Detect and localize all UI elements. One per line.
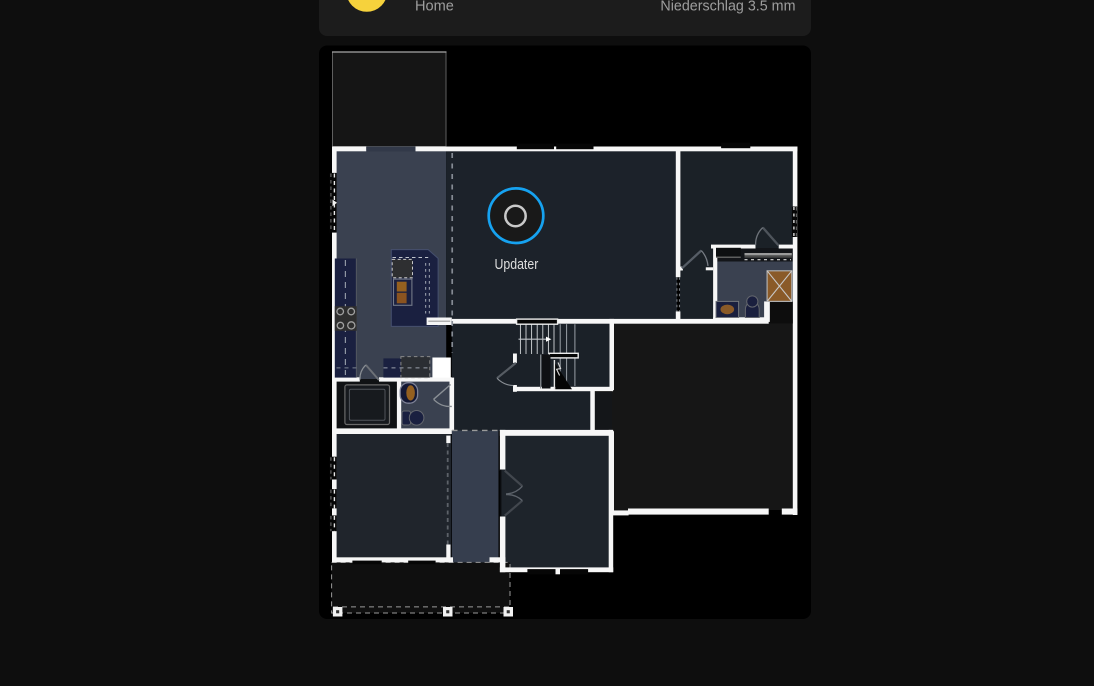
svg-text:Niederschlag 3.5 mm: Niederschlag 3.5 mm <box>660 0 795 14</box>
svg-text:Updater: Updater <box>495 256 539 273</box>
svg-text:Home: Home <box>415 0 454 15</box>
